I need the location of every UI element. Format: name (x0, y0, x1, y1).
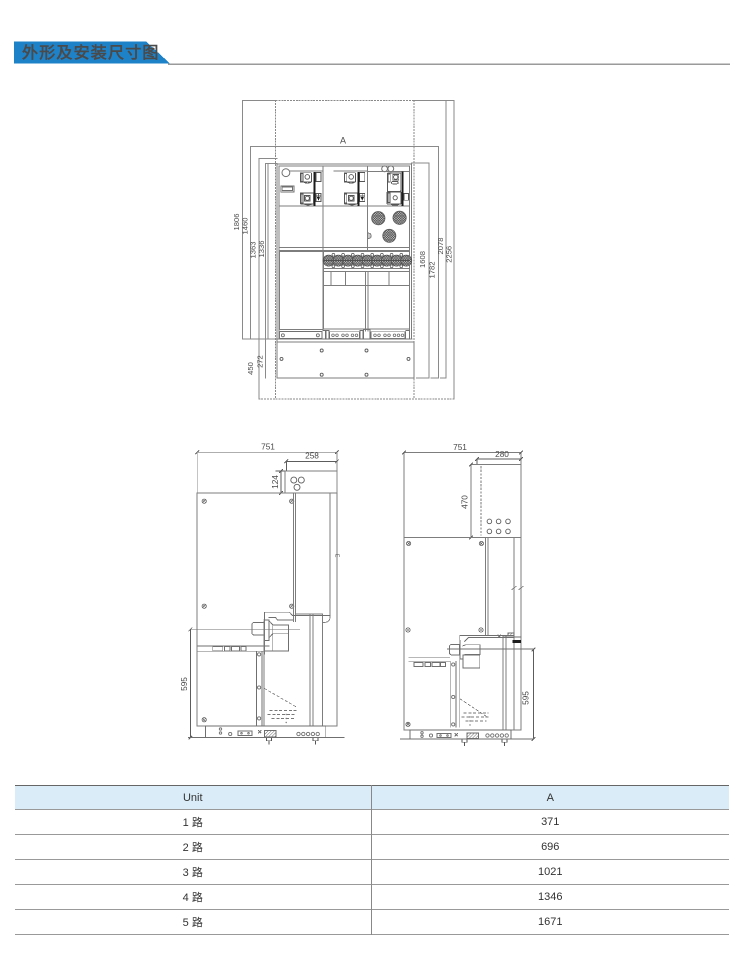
svg-text:272: 272 (255, 355, 264, 368)
svg-text:470: 470 (460, 495, 470, 509)
svg-text:124: 124 (270, 475, 280, 489)
svg-text:E: E (333, 554, 339, 558)
svg-text:450: 450 (246, 362, 255, 375)
svg-text:A: A (340, 136, 346, 146)
svg-text:595: 595 (521, 691, 531, 705)
svg-text:258: 258 (305, 451, 319, 461)
svg-text:280: 280 (495, 449, 509, 459)
svg-text:1460: 1460 (241, 218, 250, 235)
svg-text:1608: 1608 (418, 251, 427, 268)
svg-text:1336: 1336 (257, 241, 266, 258)
svg-text:1806: 1806 (232, 214, 241, 231)
svg-text:751: 751 (453, 442, 467, 452)
svg-text:751: 751 (261, 442, 275, 452)
svg-text:595: 595 (179, 677, 189, 691)
svg-text:1782: 1782 (428, 262, 437, 279)
svg-text:2256: 2256 (445, 246, 454, 263)
